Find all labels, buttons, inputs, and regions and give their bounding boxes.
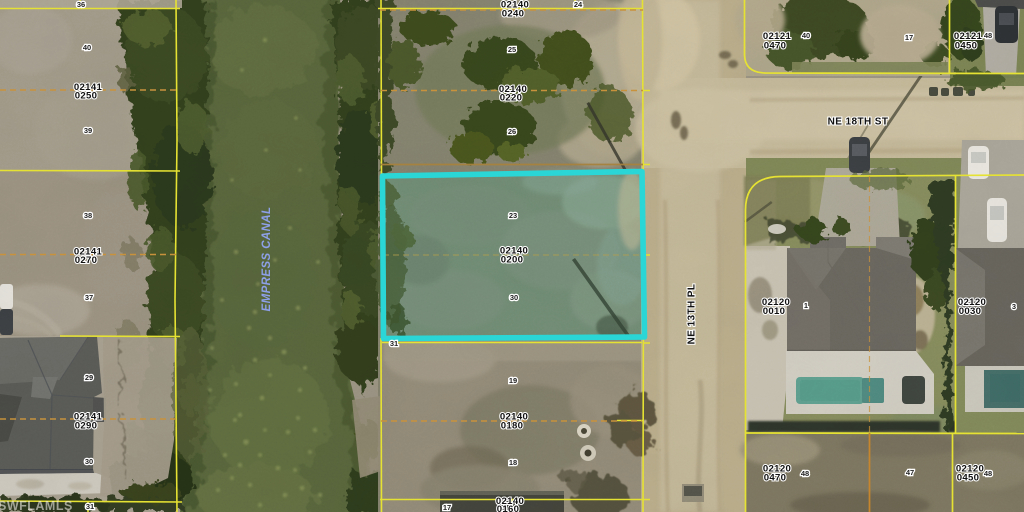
svg-text:17: 17 <box>905 33 913 42</box>
svg-text:SWFLAMLS: SWFLAMLS <box>0 499 73 512</box>
svg-text:0200: 0200 <box>501 255 524 266</box>
svg-text:23: 23 <box>509 211 517 220</box>
svg-text:26: 26 <box>508 127 516 136</box>
svg-text:0450: 0450 <box>955 41 978 52</box>
svg-text:0240: 0240 <box>502 9 525 20</box>
svg-text:17: 17 <box>443 503 451 512</box>
svg-text:0470: 0470 <box>764 41 787 52</box>
svg-text:48: 48 <box>984 31 992 40</box>
svg-text:37: 37 <box>85 293 93 302</box>
svg-text:1: 1 <box>804 301 808 310</box>
svg-text:0220: 0220 <box>500 93 523 104</box>
svg-text:0160: 0160 <box>497 504 520 512</box>
svg-text:0180: 0180 <box>501 421 524 432</box>
svg-text:19: 19 <box>509 376 517 385</box>
svg-text:EMPRESS CANAL: EMPRESS CANAL <box>261 207 273 312</box>
svg-text:31: 31 <box>390 339 398 348</box>
svg-text:31: 31 <box>86 502 94 511</box>
svg-text:0030: 0030 <box>959 306 982 317</box>
svg-text:NE 13TH PL: NE 13TH PL <box>687 284 698 345</box>
svg-text:30: 30 <box>85 457 93 466</box>
svg-text:0270: 0270 <box>75 255 98 266</box>
svg-text:0010: 0010 <box>763 306 786 317</box>
svg-text:0450: 0450 <box>957 473 980 484</box>
svg-text:39: 39 <box>84 126 92 135</box>
svg-text:40: 40 <box>83 43 91 52</box>
svg-text:24: 24 <box>574 0 583 9</box>
svg-text:40: 40 <box>802 31 810 40</box>
svg-text:NE 18TH ST: NE 18TH ST <box>828 117 889 128</box>
svg-text:0470: 0470 <box>764 473 787 484</box>
svg-text:30: 30 <box>510 293 518 302</box>
svg-text:47: 47 <box>906 468 914 477</box>
svg-text:48: 48 <box>801 469 809 478</box>
svg-text:18: 18 <box>509 458 517 467</box>
svg-text:0290: 0290 <box>75 421 98 432</box>
svg-text:25: 25 <box>508 45 516 54</box>
svg-text:36: 36 <box>77 0 85 9</box>
svg-text:48: 48 <box>984 469 992 478</box>
svg-text:0250: 0250 <box>75 91 98 102</box>
svg-text:3: 3 <box>1012 302 1016 311</box>
svg-text:29: 29 <box>85 373 93 382</box>
svg-text:38: 38 <box>84 211 92 220</box>
